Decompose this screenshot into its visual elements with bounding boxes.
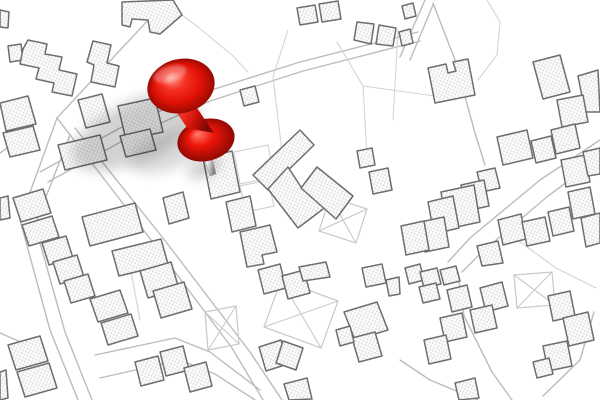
building-footprint — [226, 196, 256, 232]
building-footprint — [470, 305, 497, 333]
building-footprint — [447, 285, 472, 312]
building-footprint — [533, 358, 553, 378]
building-footprint — [357, 148, 375, 168]
building-footprint — [376, 25, 396, 46]
building-footprint — [319, 1, 341, 22]
building-footprint — [498, 214, 526, 245]
building-footprint — [557, 95, 588, 127]
building-footprint — [522, 217, 550, 246]
building-footprint — [386, 277, 400, 296]
building-footprint — [0, 196, 10, 220]
building-footprint — [548, 207, 574, 236]
building-footprint — [297, 5, 318, 25]
building-footprint — [399, 29, 413, 46]
building-footprint — [568, 187, 595, 219]
building-footprint — [440, 266, 460, 285]
building-footprint — [184, 362, 212, 392]
building-footprint — [369, 168, 392, 194]
map-svg — [0, 0, 600, 400]
building-footprint — [0, 10, 9, 28]
building-footprint — [497, 130, 533, 165]
building-footprint — [135, 356, 164, 386]
building-footprint — [401, 221, 429, 255]
building-footprint — [258, 264, 286, 294]
building-footprint — [354, 22, 374, 44]
building-footprint — [551, 124, 580, 154]
building-footprint — [424, 335, 451, 364]
building-footprint — [362, 264, 386, 287]
building-footprint — [531, 136, 556, 163]
building-footprint — [0, 370, 8, 400]
building-footprint — [336, 326, 354, 346]
building-footprint — [477, 241, 503, 266]
cadastral-map — [0, 0, 600, 400]
building-footprint — [402, 3, 416, 19]
building-footprint — [419, 283, 440, 303]
building-footprint — [240, 86, 259, 106]
